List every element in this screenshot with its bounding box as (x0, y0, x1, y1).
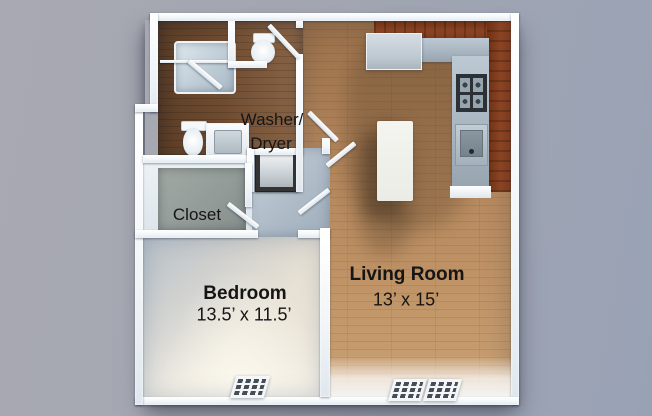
stove-cooktop (456, 74, 487, 112)
living-room-label: Living Room (349, 264, 464, 286)
wall-left-lower (135, 104, 143, 405)
wall-bathroom-south (143, 155, 252, 163)
wall-closet-right (245, 163, 252, 207)
closet-label: Closet (173, 205, 221, 225)
vent-grid-icon (427, 382, 459, 398)
wall-left-step (135, 104, 158, 112)
burner-icon (473, 78, 483, 92)
wall-bedroom-living-divider (320, 228, 330, 397)
vent-grid-icon (392, 382, 424, 398)
wall-bathroom-right-upper (296, 21, 303, 28)
washer-dryer-unit (255, 149, 298, 192)
kitchen-sink (455, 124, 488, 166)
wall-wc-south (228, 61, 267, 68)
wall-bedroom-north-left (135, 230, 258, 238)
refrigerator (366, 33, 422, 70)
vent-grid-icon (234, 379, 267, 395)
wall-top (150, 13, 519, 21)
sink-drain (469, 149, 474, 154)
floor-vent-living-1 (388, 379, 427, 401)
bedroom-dimensions: 13.5’ x 11.5’ (196, 305, 291, 326)
burner-icon (460, 95, 470, 109)
kitchen-island (377, 121, 413, 201)
bathtub (174, 41, 236, 94)
wall-left-upper (150, 13, 158, 112)
burner-icon (473, 95, 483, 109)
laundry-label-line1: Washer/ (241, 110, 304, 130)
bedroom-label: Bedroom (203, 283, 286, 305)
vanity-sink (214, 130, 242, 154)
wall-bottom (135, 397, 519, 405)
floor-plan-image: Washer/ Dryer Closet Bedroom 13.5’ x 11.… (0, 0, 652, 416)
kitchen-counter-end-panel (450, 186, 491, 198)
wall-entry-stub (322, 138, 330, 154)
wall-right (511, 13, 519, 405)
laundry-label-line2: Dryer (250, 134, 292, 154)
toilet (183, 128, 203, 156)
kitchen-cabinets-right (487, 20, 511, 192)
floor-vent-bedroom (230, 376, 270, 398)
burner-icon (460, 78, 470, 92)
washer-door (260, 155, 293, 187)
shower-glass (160, 60, 233, 63)
living-room-dimensions: 13’ x 15’ (373, 290, 439, 311)
floor-vent-living-2 (423, 379, 462, 401)
